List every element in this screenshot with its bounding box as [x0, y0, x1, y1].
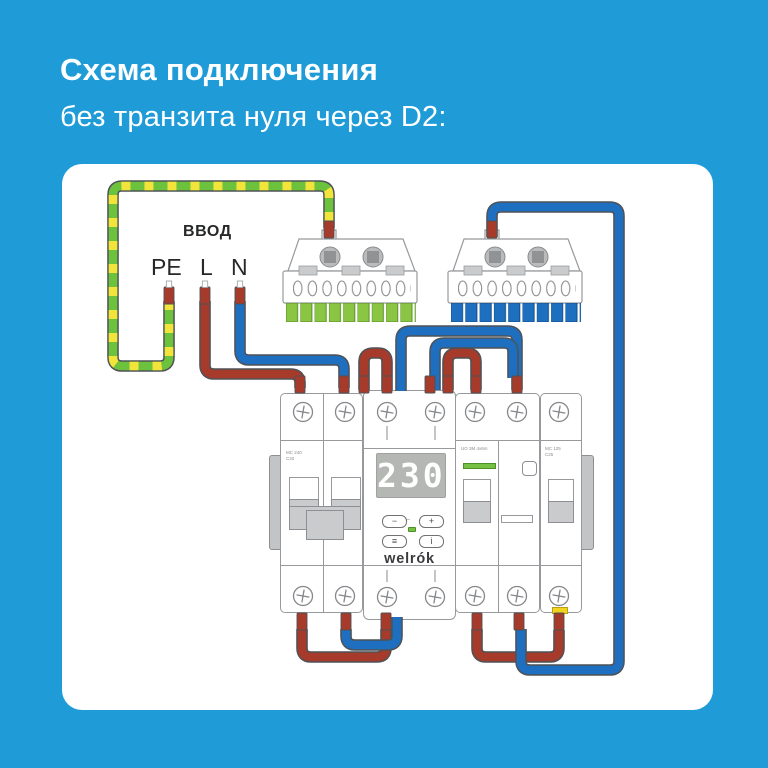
pole-divider: [323, 394, 324, 612]
breaker2-model-label: UO 3M 4x6m: [461, 446, 488, 452]
relay-status-led: [408, 527, 416, 532]
breaker3-model-label: MC 125 C25: [545, 446, 561, 457]
neutral-label: N: [231, 254, 248, 281]
breaker2-notch: [501, 515, 533, 523]
breaker2-test-button: [522, 461, 537, 476]
relay-led-mark: ~: [406, 517, 410, 524]
divider: [281, 565, 362, 566]
input-breaker-d1: MC 240 C40: [280, 393, 363, 613]
output-breaker-single: MC 125 C25: [540, 393, 582, 613]
relay-plus-button: +: [419, 515, 444, 528]
breaker1-model-label: MC 240 C40: [286, 450, 302, 461]
breaker3-yellow-marker: [552, 607, 568, 614]
relay-menu-button: ≡: [382, 535, 407, 548]
breaker2-indicator-bar: [463, 463, 496, 469]
divider: [364, 448, 455, 449]
infographic-root: { "title": { "line1": "Схема подключения…: [0, 0, 768, 768]
divider: [541, 440, 581, 441]
breaker2-toggle-frame: [463, 479, 491, 503]
output-breaker-d2pole: UO 3M 4x6m: [455, 393, 540, 613]
divider: [281, 440, 362, 441]
divider: [541, 565, 581, 566]
breaker3-toggle-handle: [548, 501, 574, 523]
relay-brand-logo: welrók: [364, 551, 455, 567]
title-line-2: без транзита нуля через D2:: [60, 101, 447, 134]
input-header-label: ВВОД: [183, 223, 232, 241]
pole-divider: [498, 440, 499, 612]
voltage-relay-d2: 230 − + ≡ i ~ welrók: [363, 390, 456, 620]
din-tab-right: [581, 455, 594, 550]
title-line-1: Схема подключения: [60, 52, 378, 88]
breaker3-toggle-frame: [548, 479, 574, 503]
breaker1-crossbar-center: [306, 510, 344, 540]
relay-minus-button: −: [382, 515, 407, 528]
breaker2-toggle-handle: [463, 501, 491, 523]
line-label: L: [200, 254, 213, 281]
relay-voltage-display: 230: [376, 453, 446, 498]
pe-label: PE: [151, 254, 182, 281]
relay-info-button: i: [419, 535, 444, 548]
